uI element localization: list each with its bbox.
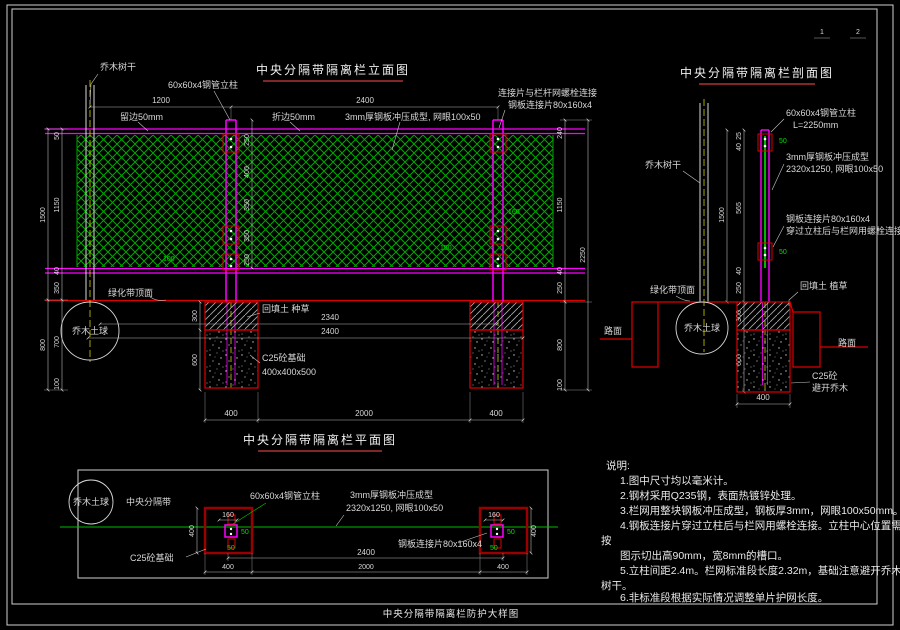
tree-ball-label: 乔木土球 bbox=[72, 325, 108, 336]
plan-dim-found-gap: 2000 bbox=[358, 564, 374, 571]
section-label-post-2: L=2250mm bbox=[793, 120, 838, 130]
footer-title-band: 中央分隔带隔离栏防护大样图 bbox=[383, 608, 520, 620]
notes-heading: 说明: bbox=[606, 459, 630, 472]
elevation-view: 中央分隔带隔离栏立面图 乔木土球 bbox=[40, 61, 597, 423]
label-post: 60x60x4钢管立柱 bbox=[168, 79, 238, 90]
plan-dim-found-right-side: 400 bbox=[531, 525, 538, 537]
dim-bolt-1: 100 bbox=[163, 256, 175, 263]
plan-label-plate: 钢板连接片80x160x4 bbox=[398, 538, 482, 549]
dim-found-depth: 600 bbox=[192, 354, 199, 366]
note-line-3: 3.栏网用整块钢板冲压成型，钢板厚3mm，网眼100x50mm。 bbox=[620, 504, 900, 517]
section-foundation bbox=[737, 302, 790, 392]
section-label-plate-2: 穿过立柱后与栏网用螺栓连接 bbox=[786, 225, 900, 236]
plan-title: 中央分隔带隔离栏平面图 bbox=[243, 432, 397, 447]
elevation-left-dims: 50 1150 40 350 1500 700 100 800 bbox=[40, 129, 68, 390]
notes-block: 说明: 1.图中尺寸均以毫米计。 2.钢材采用Q235钢，表面热镀锌处理。 3.… bbox=[601, 459, 900, 604]
plan-dim-found-left-side: 400 bbox=[189, 525, 196, 537]
dim-mid-4: 350 bbox=[244, 230, 251, 242]
dim-bolt-2: 150 bbox=[440, 245, 452, 252]
plan-label-mesh-2: 2320x1250, 网眼100x50 bbox=[346, 503, 443, 513]
dim-right-total: 2250 bbox=[580, 247, 587, 263]
section-bolt-mid: 50 bbox=[779, 249, 787, 256]
drawing-canvas: 1 2 中央分隔带隔离栏立面图 乔木土球 bbox=[0, 0, 900, 630]
dim-tree-to-post: 1200 bbox=[152, 96, 170, 105]
plan-bolt-2: 50 bbox=[227, 545, 235, 552]
section-view: 中央分隔带隔离栏剖面图 乔木树干 50 50 bbox=[600, 65, 900, 408]
section-ground-curbs bbox=[600, 302, 868, 367]
elevation-bottom-dims: 400 2000 400 bbox=[205, 392, 523, 423]
dim-found-right: 400 bbox=[489, 409, 503, 418]
section-dim-rail: 40 bbox=[736, 267, 743, 275]
note-line-5: 5.立柱间距2.4m。栏网标准段长度2.32m，基础注意避开乔木 bbox=[620, 564, 900, 577]
page-number-2: 2 bbox=[856, 29, 860, 36]
plan-label-median: 中央分隔带 bbox=[126, 496, 171, 507]
dim-panel-len: 2340 bbox=[321, 313, 339, 322]
cad-drawing-sheet: 1 2 中央分隔带隔离栏立面图 乔木土球 bbox=[0, 0, 900, 630]
section-label-c25-1: C25砼 bbox=[812, 370, 838, 381]
label-connect-1: 连接片与栏杆网螺栓连接 bbox=[498, 87, 597, 98]
section-label-road-right: 路面 bbox=[838, 337, 856, 348]
label-connect-2: 钢板连接片80x160x4 bbox=[508, 99, 592, 110]
section-dim-top2: 40 bbox=[736, 143, 743, 151]
page-number-1: 1 bbox=[820, 29, 824, 36]
label-foundation-2: 400x400x500 bbox=[262, 367, 316, 377]
dim-left-total: 1500 bbox=[40, 207, 47, 223]
section-dim-width: 400 bbox=[756, 393, 770, 402]
note-line-2: 2.钢材采用Q235钢，表面热镀锌处理。 bbox=[620, 489, 801, 502]
label-edge-left: 留边50mm bbox=[120, 111, 163, 122]
section-dim-top1: 25 bbox=[736, 132, 743, 140]
label-tree-trunk: 乔木树干 bbox=[100, 61, 136, 72]
section-label-plate-1: 钢板连接片80x160x4 bbox=[786, 213, 870, 224]
dim-right-rail: 40 bbox=[557, 267, 564, 275]
plan-bolt-4: 50 bbox=[490, 545, 498, 552]
note-line-5b: 树干。 bbox=[601, 579, 633, 592]
plan-label-post: 60x60x4钢管立柱 bbox=[250, 490, 320, 501]
section-title: 中央分隔带隔离栏剖面图 bbox=[680, 65, 834, 80]
dim-left-rail: 40 bbox=[54, 267, 61, 275]
elevation-right-dims: 240 1150 40 250 800 100 2250 bbox=[557, 120, 592, 391]
plan-dim-found-right: 400 bbox=[497, 564, 509, 571]
dim-mid-3: 350 bbox=[244, 199, 251, 211]
section-bolt-top: 50 bbox=[779, 138, 787, 145]
dim-bay-len: 2400 bbox=[321, 327, 339, 336]
section-label-greenbelt: 绿化带顶面 bbox=[650, 284, 695, 295]
dim-left-mesh: 1150 bbox=[54, 197, 61, 212]
note-line-4b: 按 bbox=[601, 534, 612, 547]
section-label-backfill: 回填土 植草 bbox=[800, 280, 848, 291]
label-mesh-spec: 3mm厚钢板冲压成型, 网眼100x50 bbox=[345, 111, 481, 122]
plan-bolt-1: 50 bbox=[241, 529, 249, 536]
dim-mid-1: 250 bbox=[244, 134, 251, 146]
section-dim-mesh-upper: 565 bbox=[736, 202, 743, 214]
dim-mid-2: 400 bbox=[244, 166, 251, 178]
dim-left-bottom: 350 bbox=[54, 282, 61, 294]
dim-found-left: 400 bbox=[224, 409, 238, 418]
dim-bolt-3: 160 bbox=[508, 209, 520, 216]
elevation-title: 中央分隔带隔离栏立面图 bbox=[256, 62, 410, 77]
section-tree-trunk bbox=[700, 99, 708, 352]
section-label-tree-ball: 乔木土球 bbox=[684, 322, 720, 333]
section-label-tree: 乔木树干 bbox=[645, 159, 681, 170]
dim-left-below-2: 100 bbox=[54, 378, 61, 390]
dim-right-below-1: 800 bbox=[557, 339, 564, 351]
label-foundation-1: C25砼基础 bbox=[262, 352, 306, 363]
plan-label-mesh-1: 3mm厚钢板冲压成型 bbox=[350, 489, 433, 500]
plan-view: 中央分隔带隔离栏平面图 乔木土球 中央分隔带 160 400 50 50 bbox=[60, 432, 558, 578]
dim-mid-5: 250 bbox=[244, 254, 251, 266]
note-line-1: 1.图中尺寸均以毫米计。 bbox=[620, 474, 734, 487]
label-edge-right: 折边50mm bbox=[272, 111, 315, 122]
plan-dim-post-left: 160 bbox=[222, 512, 234, 519]
label-backfill: 回填土 种草 bbox=[262, 303, 310, 314]
plan-dim-post-right: 160 bbox=[488, 512, 500, 519]
dim-right-mesh: 1150 bbox=[557, 197, 564, 212]
plan-bottom-dims: 2400 400 2000 400 bbox=[205, 548, 527, 575]
section-label-mesh-2: 2320x1250, 网眼100x50 bbox=[786, 164, 883, 174]
plan-dim-spacing: 2400 bbox=[357, 548, 375, 557]
elevation-foundation-dims: 300 600 bbox=[192, 302, 200, 390]
section-label-post-1: 60x60x4钢管立柱 bbox=[786, 107, 856, 118]
section-label-mesh-1: 3mm厚钢板冲压成型 bbox=[786, 151, 869, 162]
plan-label-tree-ball: 乔木土球 bbox=[73, 496, 109, 507]
mesh-panel bbox=[77, 135, 553, 267]
foundation-right bbox=[470, 302, 523, 388]
plan-foundation-right bbox=[480, 508, 527, 553]
dim-left-below-total: 800 bbox=[40, 339, 47, 351]
note-line-6: 6.非标准段根据实际情况调整单片护网长度。 bbox=[620, 591, 828, 604]
plan-bolt-3: 50 bbox=[507, 529, 515, 536]
label-greenbelt-top: 绿化带顶面 bbox=[108, 287, 153, 298]
plan-dim-found-left: 400 bbox=[222, 564, 234, 571]
section-label-c25-2: 避开乔木 bbox=[812, 382, 848, 393]
dim-right-top: 240 bbox=[557, 127, 564, 139]
section-label-road-left: 路面 bbox=[604, 325, 622, 336]
dim-hatch-depth: 300 bbox=[192, 310, 199, 322]
dim-right-below-2: 100 bbox=[557, 379, 564, 391]
dim-left-below-1: 700 bbox=[54, 336, 61, 348]
note-line-4c: 图示切出高90mm，宽8mm的槽口。 bbox=[620, 549, 788, 562]
dim-left-top: 50 bbox=[54, 132, 61, 140]
section-dim-total: 1500 bbox=[719, 207, 726, 223]
section-dim-to-ground: 250 bbox=[736, 282, 743, 294]
plan-label-foundation: C25砼基础 bbox=[130, 552, 174, 563]
note-line-4: 4.钢板连接片穿过立柱后与栏网用螺栓连接。立柱中心位置需 bbox=[620, 519, 900, 532]
dim-right-bottom: 250 bbox=[557, 282, 564, 294]
dim-post-spacing: 2400 bbox=[356, 96, 374, 105]
footer-drawing-title: 中央分隔带隔离栏防护大样图 bbox=[383, 608, 520, 620]
foundation-left bbox=[205, 302, 258, 388]
dim-found-gap: 2000 bbox=[355, 409, 373, 418]
